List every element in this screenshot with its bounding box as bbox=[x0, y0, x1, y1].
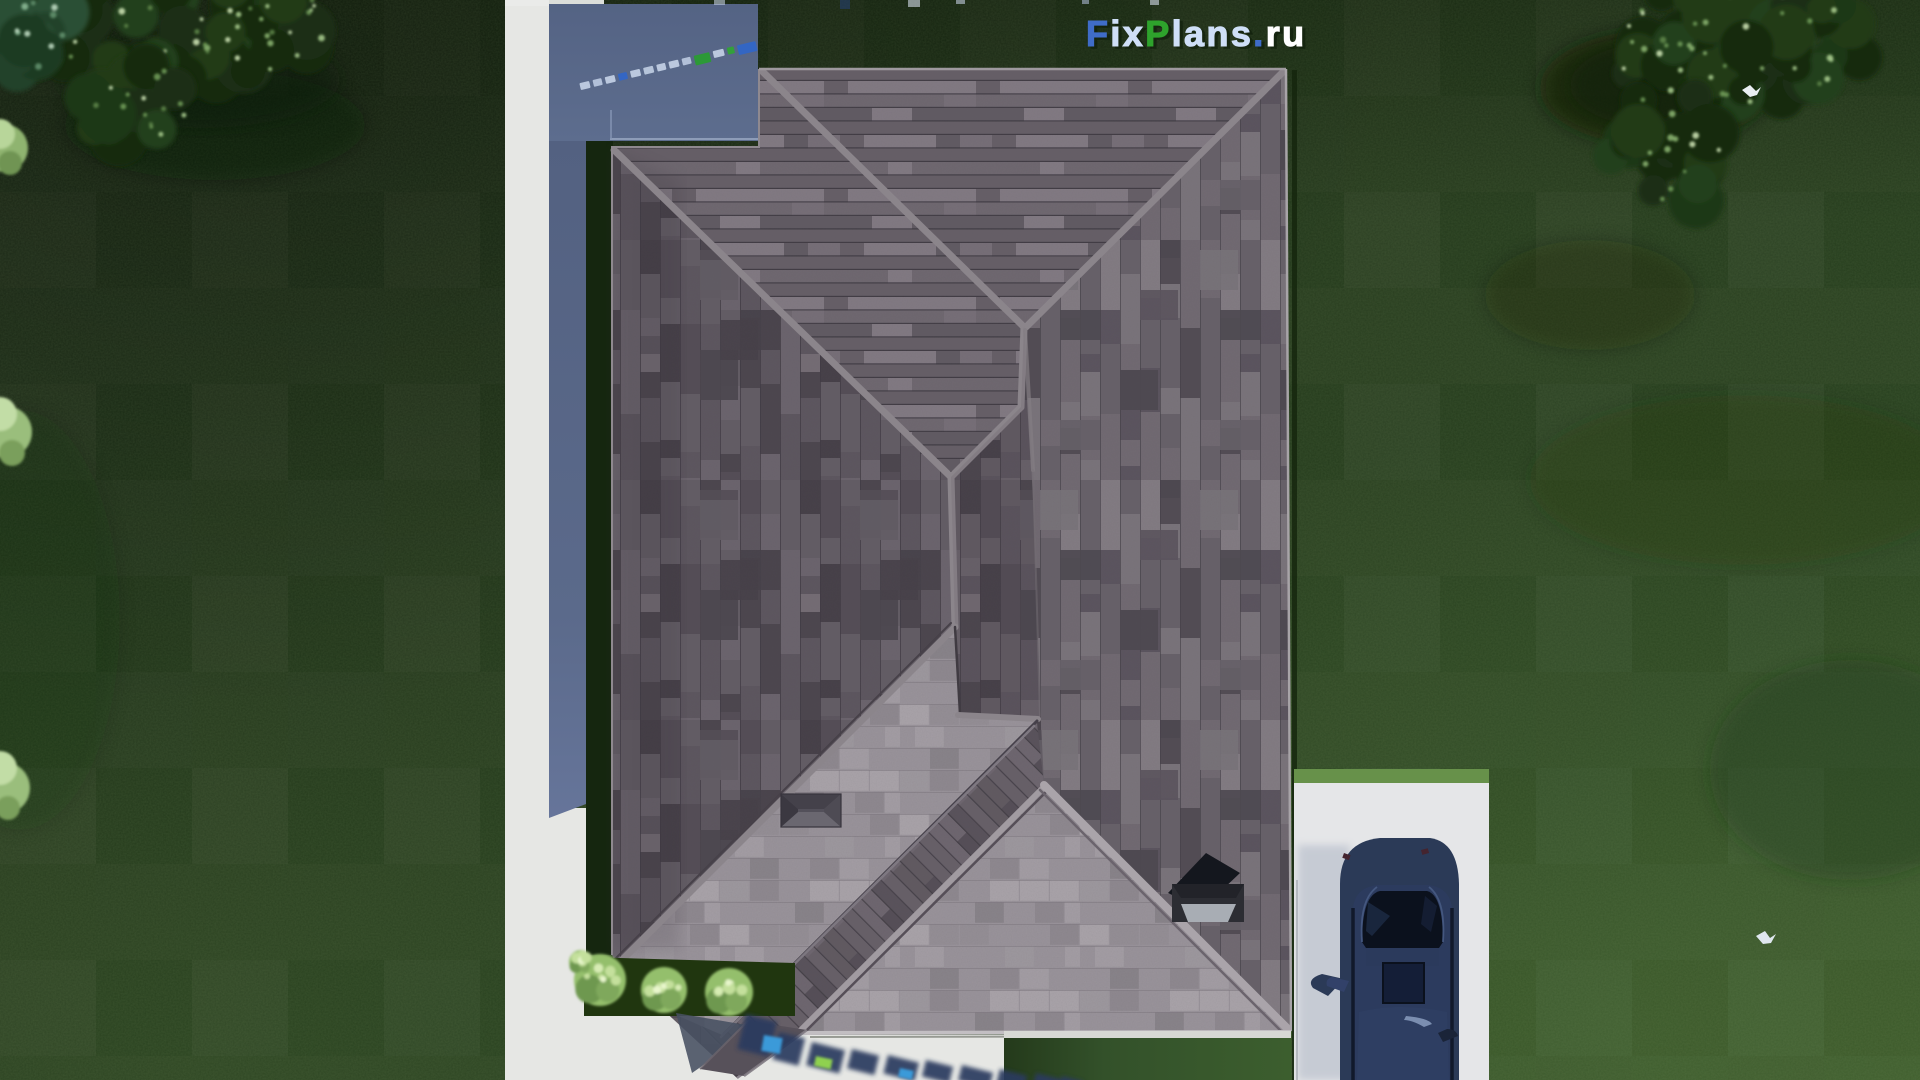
svg-text:FixPlans.ru: FixPlans.ru bbox=[1086, 13, 1307, 54]
